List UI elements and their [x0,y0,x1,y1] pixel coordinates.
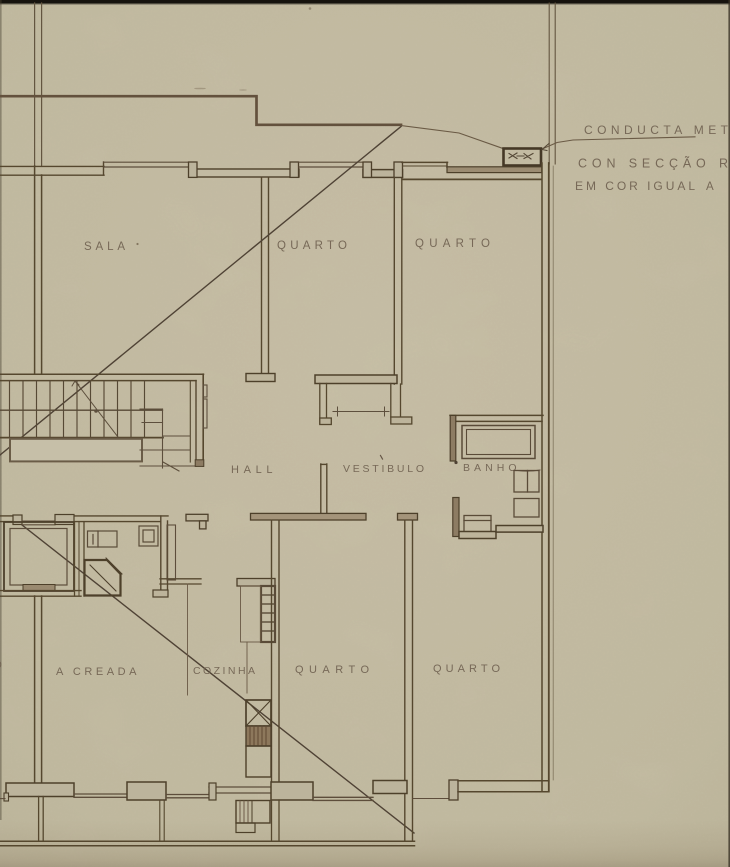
svg-text:BANHO: BANHO [463,462,518,474]
svg-text:A CREADA: A CREADA [56,666,138,678]
svg-text:O: O [0,660,2,671]
svg-text:HALL: HALL [231,464,275,476]
svg-text:A: A [706,181,714,193]
svg-text:VESTIBULO: VESTIBULO [343,463,425,475]
svg-text:EM COR IGUAL: EM COR IGUAL [575,179,697,193]
svg-text:CONDUCTA MET: CONDUCTA MET [584,123,730,137]
